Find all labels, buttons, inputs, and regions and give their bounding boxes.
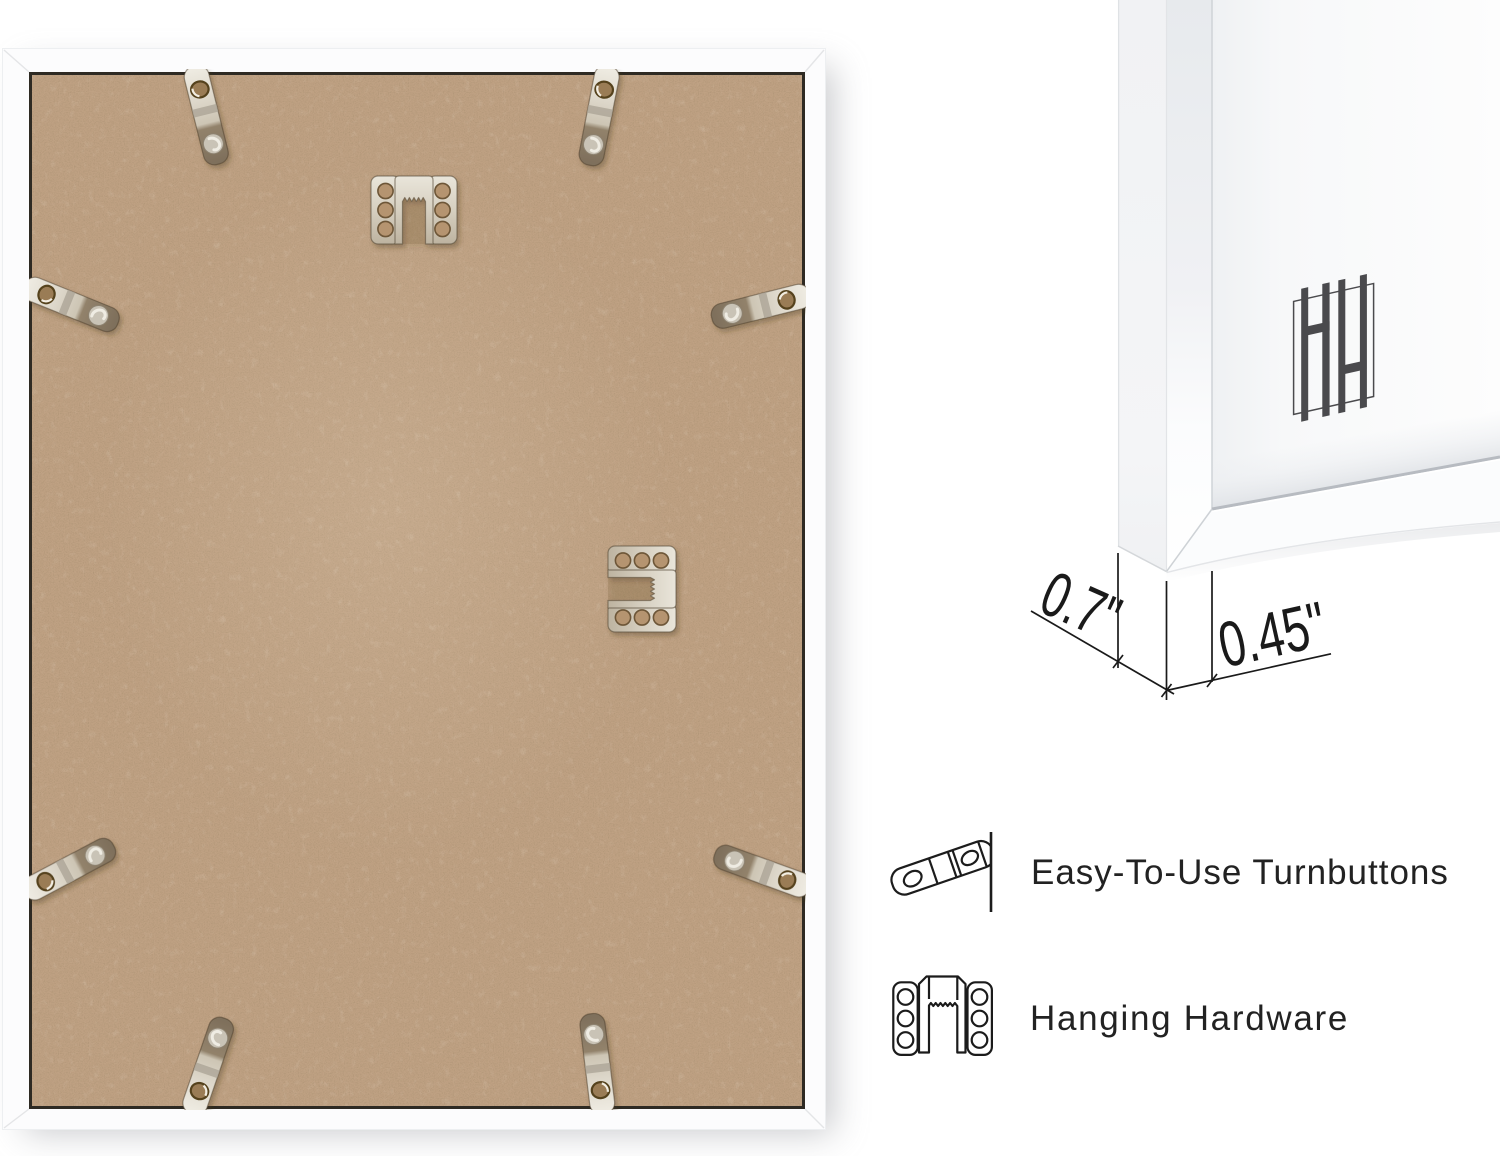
svg-text:0.45": 0.45" <box>1212 587 1333 681</box>
svg-text:0.7": 0.7" <box>1031 557 1132 654</box>
